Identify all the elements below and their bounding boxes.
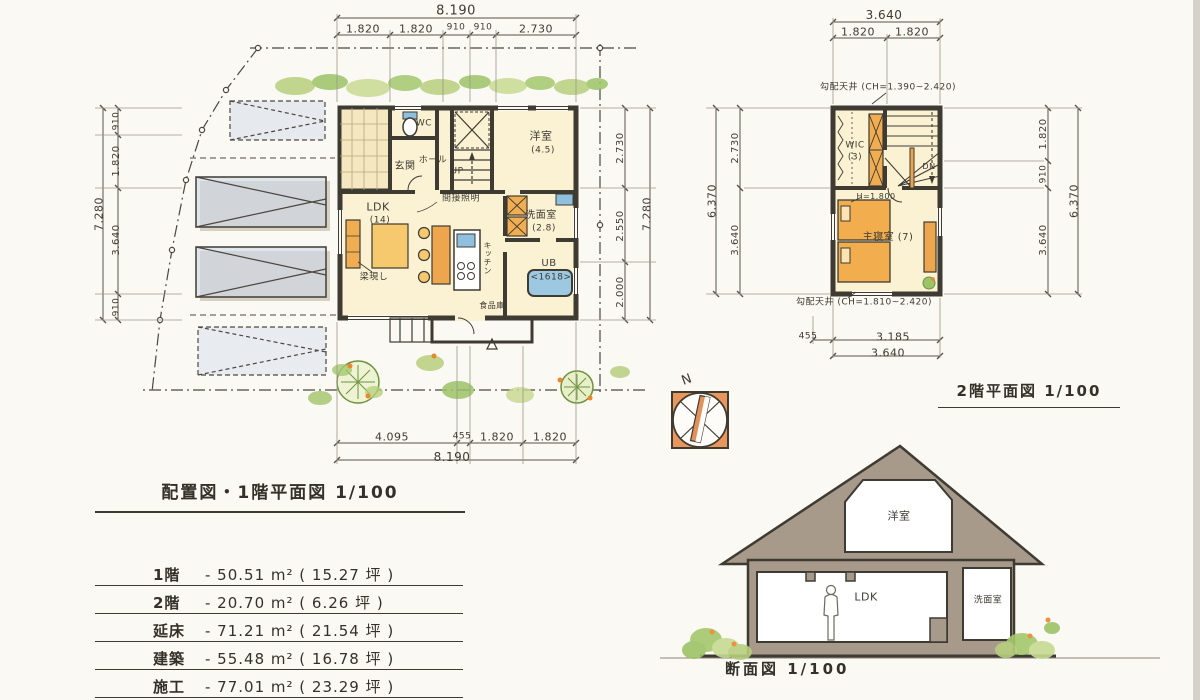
f2-dim-bottom-seg1: 455 xyxy=(799,333,818,342)
f1-dim-right-seg2: 2.550 xyxy=(616,210,626,241)
living-table xyxy=(372,224,408,268)
f1-note-exposed-beam: 梁現し xyxy=(360,274,389,283)
floor2-plan-title: 2階平面図 1/100 xyxy=(938,380,1120,408)
f1-dim-left-seg4: 910 xyxy=(113,298,122,317)
area-row-label: 施工 xyxy=(153,676,205,697)
f2-dim-left-total: 6.370 xyxy=(707,184,718,218)
f1-room-kitchen: キッチン xyxy=(483,241,491,275)
sec-room-yoshitsu: 洋室 xyxy=(888,511,911,522)
section-title: 断面図 1/100 xyxy=(725,658,895,679)
f2-dim-top-total: 3.640 xyxy=(866,9,903,21)
area-row-value: - 55.48 m² ( 16.78 坪 ) xyxy=(205,648,463,669)
kitchen-counter xyxy=(454,230,480,290)
bedroom-plant xyxy=(923,277,935,289)
f1-room-wc: WC xyxy=(416,120,432,129)
f2-note-sloped-ceiling-top: 勾配天井 (CH=1.390~2.420) xyxy=(820,84,956,93)
f1-dim-bottom-seg4: 1.820 xyxy=(533,432,567,443)
f1-room-senmen: 洗面室 xyxy=(525,211,557,221)
f2-dim-top-seg2: 1.820 xyxy=(895,27,929,38)
table-row: 延床 - 71.21 m² ( 21.54 坪 ) xyxy=(95,614,463,642)
f1-dim-left-seg2: 1.820 xyxy=(112,145,122,176)
area-row-label: 2階 xyxy=(153,592,205,613)
f1-dim-top-seg5: 2.730 xyxy=(519,24,553,35)
area-row-value: - 77.01 m² ( 23.29 坪 ) xyxy=(205,676,463,697)
f1-room-ldk: LDK xyxy=(366,202,389,213)
section-beam-2 xyxy=(846,572,855,581)
f2-note-sloped-ceiling-bottom: 勾配天井 (CH=1.810~2.420) xyxy=(796,299,932,308)
f1-room-yoshitsu: 洋室 xyxy=(530,131,553,142)
area-row-label: 延床 xyxy=(153,620,205,641)
f1-dim-left-total: 7.280 xyxy=(94,197,105,231)
section-counter-block xyxy=(930,618,947,642)
sec-room-ldk: LDK xyxy=(854,592,877,603)
section-drawing xyxy=(660,446,1160,660)
f2-dim-right-seg1: 1.820 xyxy=(1039,118,1049,149)
table-row: 1階 - 50.51 m² ( 15.27 坪 ) xyxy=(95,558,463,586)
hand-drawn-house-plan-sheet: { "titles": { "floor1": "配置図・1階平面図 1/100… xyxy=(0,0,1200,700)
f1-dim-top-seg2: 1.820 xyxy=(399,24,433,35)
f2-dim-right-total: 6.370 xyxy=(1069,184,1080,218)
f2-dim-right-seg2: 910 xyxy=(1040,165,1049,184)
f2-room-wic-size: (3) xyxy=(848,154,862,163)
f2-dim-right-seg3: 3.640 xyxy=(1039,224,1049,255)
area-row-label: 1階 xyxy=(153,564,205,585)
scan-edge-strip xyxy=(1193,0,1200,700)
bedroom-desk xyxy=(924,222,936,272)
f1-room-hall: ホール xyxy=(419,157,448,166)
f1-room-senmen-size: (2.8) xyxy=(532,225,556,234)
f1-dim-bottom-seg3: 1.820 xyxy=(480,432,514,443)
parking-space-3 xyxy=(196,247,330,301)
section-beam-1 xyxy=(806,572,815,581)
f1-dim-left-seg1: 910 xyxy=(113,112,122,131)
f1-stairs-up: UP xyxy=(450,168,463,177)
f2-dim-left-seg1: 2.730 xyxy=(731,132,741,163)
dining-set xyxy=(419,226,451,284)
f1-dim-top-total: 8.190 xyxy=(436,5,476,18)
f2-dim-top-seg1: 1.820 xyxy=(841,27,875,38)
f2-room-shushinshitsu: 主寝室 (7) xyxy=(863,233,914,243)
area-schedule-table: 1階 - 50.51 m² ( 15.27 坪 ) 2階 - 20.70 m² … xyxy=(95,558,463,698)
f1-dim-bottom-seg2: 455 xyxy=(453,433,472,442)
f1-room-pantry: 食品庫 xyxy=(479,302,505,310)
f1-dim-top-seg4: 910 xyxy=(474,24,493,33)
table-row: 施工 - 77.01 m² ( 23.29 坪 ) xyxy=(95,670,463,698)
garden-tree-large xyxy=(332,361,383,403)
area-row-value: - 50.51 m² ( 15.27 坪 ) xyxy=(205,564,463,585)
floor1-entrance-tile xyxy=(340,108,390,190)
f1-room-ldk-size: (14) xyxy=(370,217,390,226)
f1-dim-right-seg3: 2.000 xyxy=(616,276,626,307)
area-row-value: - 71.21 m² ( 21.54 坪 ) xyxy=(205,620,463,641)
table-row: 2階 - 20.70 m² ( 6.26 坪 ) xyxy=(95,586,463,614)
sec-room-senmen: 洗面室 xyxy=(974,597,1003,606)
f1-dim-right-total: 7.280 xyxy=(642,197,653,231)
parking-space-2 xyxy=(196,177,330,231)
area-row-value: - 20.70 m² ( 6.26 坪 ) xyxy=(205,592,463,613)
parking-space-4 xyxy=(198,327,326,375)
f1-dim-bottom-total: 8.190 xyxy=(434,451,471,463)
f2-dim-bottom-seg2: 3.185 xyxy=(876,332,910,343)
f2-note-height: H=1.800 xyxy=(856,193,895,201)
table-row: 建築 - 55.48 m² ( 16.78 坪 ) xyxy=(95,642,463,670)
f2-stairs-dn: DN xyxy=(922,163,935,171)
f2-dim-left-seg2: 3.640 xyxy=(731,224,741,255)
f1-note-indirect-light: 間接照明 xyxy=(442,195,480,204)
floor1-plan-title: 配置図・1階平面図 1/100 xyxy=(95,478,465,513)
f2-dim-bottom-total: 3.640 xyxy=(871,348,905,359)
f1-dim-top-seg1: 1.820 xyxy=(346,24,380,35)
f1-room-ub: UB xyxy=(541,259,556,269)
f1-room-genkan: 玄関 xyxy=(395,162,416,172)
parking-space-1 xyxy=(230,101,325,140)
bed-2 xyxy=(838,242,890,282)
sofa xyxy=(346,220,360,268)
f2-room-wic: WIC xyxy=(845,142,864,151)
f1-dim-bottom-seg1: 4.095 xyxy=(375,432,409,443)
area-row-label: 建築 xyxy=(153,648,205,669)
f1-room-yoshitsu-size: (4.5) xyxy=(531,147,555,156)
f1-dim-top-seg3: 910 xyxy=(447,24,466,33)
f1-room-ub-size: <1618> xyxy=(531,274,572,283)
compass xyxy=(672,392,728,448)
f1-dim-left-seg3: 3.640 xyxy=(112,224,122,255)
hedge-top xyxy=(275,74,608,97)
f1-dim-right-seg1: 2.730 xyxy=(616,132,626,163)
toilet-icon xyxy=(403,112,417,136)
section-room-ldk xyxy=(757,572,947,642)
